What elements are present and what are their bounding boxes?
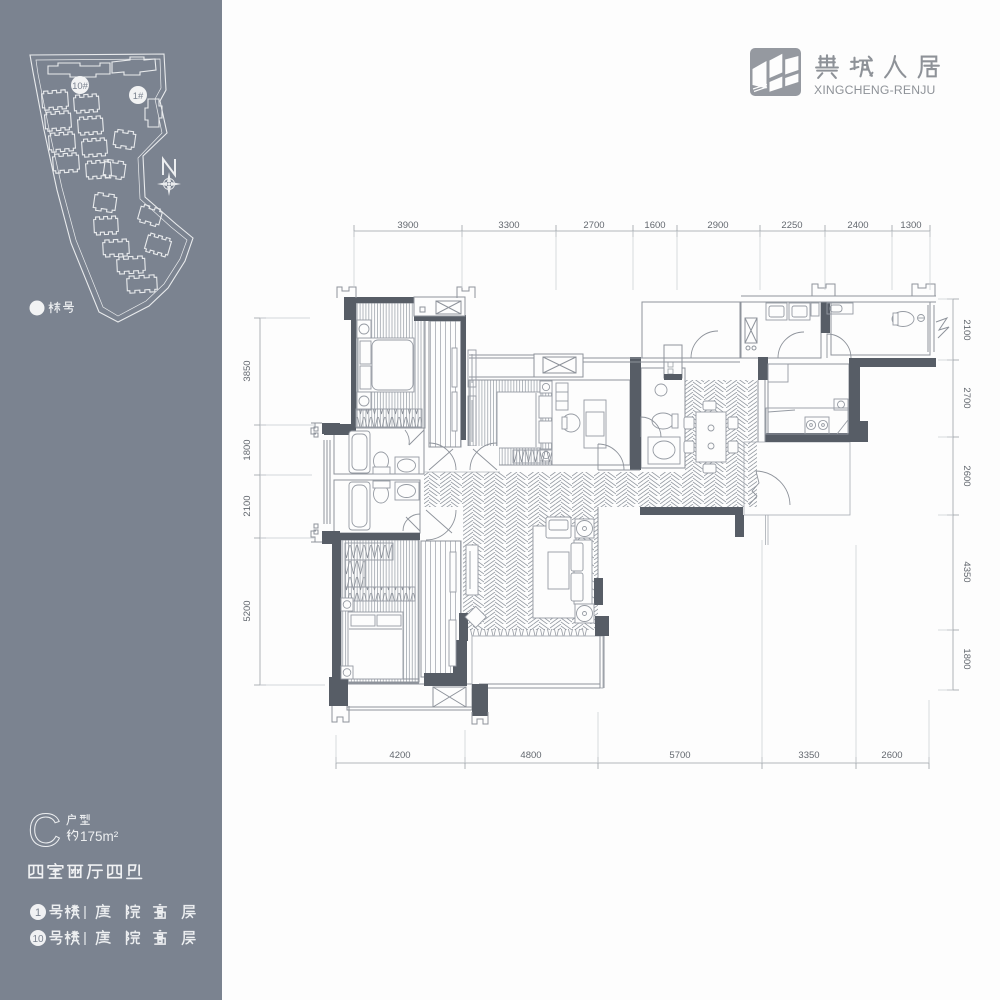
svg-text:2400: 2400 [847, 220, 868, 231]
svg-text:2600: 2600 [961, 465, 972, 486]
svg-text:3300: 3300 [498, 220, 519, 231]
svg-text:XINGCHENG-RENJU: XINGCHENG-RENJU [814, 83, 936, 97]
svg-text:2700: 2700 [961, 387, 972, 408]
svg-text:3850: 3850 [242, 360, 253, 381]
svg-text:4350: 4350 [961, 561, 972, 582]
svg-text:1#: 1# [133, 91, 144, 102]
svg-text:3350: 3350 [798, 750, 819, 761]
svg-text:175m²: 175m² [80, 829, 119, 844]
svg-text:4800: 4800 [520, 750, 541, 761]
svg-text:C: C [28, 804, 61, 856]
svg-text:1800: 1800 [242, 439, 253, 460]
svg-text:5200: 5200 [242, 600, 253, 621]
svg-text:5700: 5700 [669, 750, 690, 761]
svg-text:3900: 3900 [397, 220, 418, 231]
svg-text:2100: 2100 [242, 495, 253, 516]
svg-text:2250: 2250 [781, 220, 802, 231]
svg-text:10#: 10# [72, 81, 89, 92]
svg-text:1800: 1800 [961, 648, 972, 669]
svg-text:1: 1 [35, 907, 41, 919]
svg-text:2700: 2700 [583, 220, 604, 231]
svg-text:1600: 1600 [644, 220, 665, 231]
svg-text:1300: 1300 [900, 220, 921, 231]
svg-text:4200: 4200 [389, 750, 410, 761]
svg-text:2100: 2100 [961, 319, 972, 340]
svg-text:2900: 2900 [707, 220, 728, 231]
svg-text:10: 10 [32, 934, 44, 945]
svg-text:2600: 2600 [881, 750, 902, 761]
